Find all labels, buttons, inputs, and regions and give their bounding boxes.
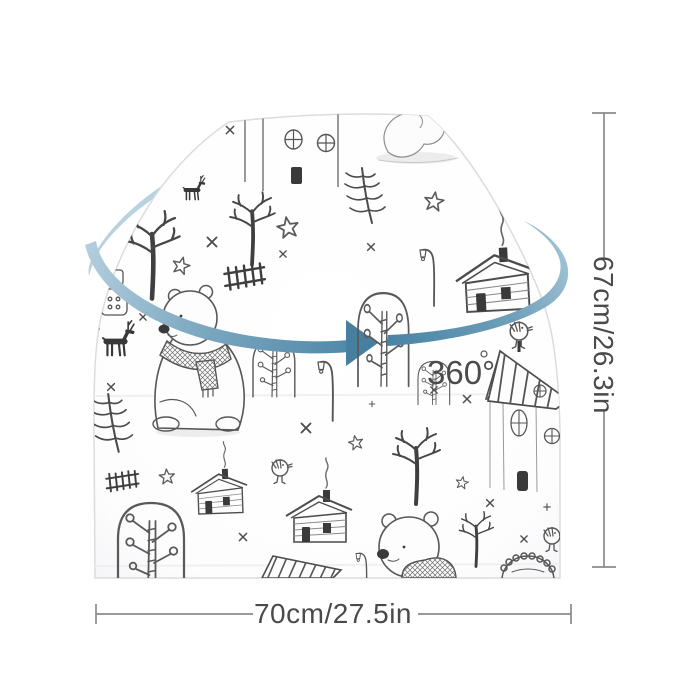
width-dimension-label: 70cm/27.5in (254, 598, 412, 629)
product-image: 360° 67cm/26.3in 70cm/27.5in (0, 0, 679, 679)
product-illustration: 360° 67cm/26.3in 70cm/27.5in (0, 0, 679, 679)
height-dimension-label: 67cm/26.3in (588, 256, 619, 414)
canopy-cover (90, 111, 576, 595)
rotation-degree-label: 360° (427, 354, 495, 391)
